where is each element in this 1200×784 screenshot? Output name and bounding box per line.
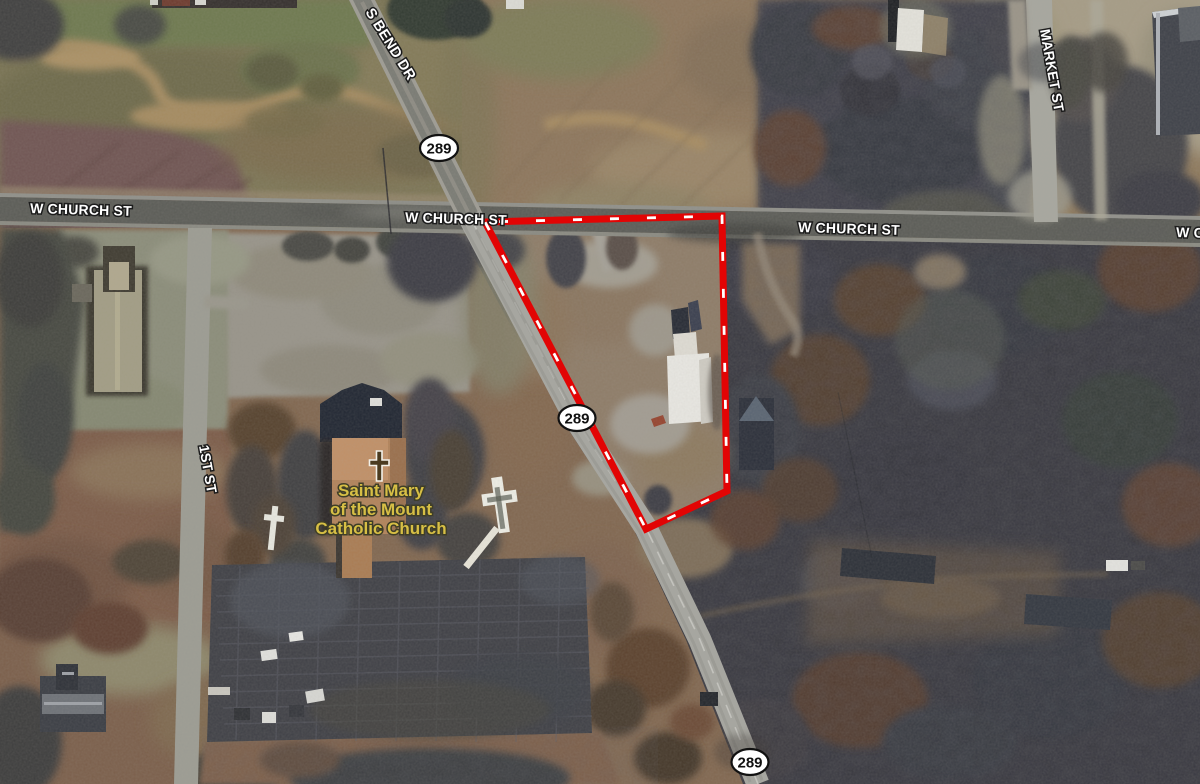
svg-text:W CHURCH ST: W CHURCH ST [405, 209, 507, 228]
svg-text:of the Mount: of the Mount [330, 500, 432, 519]
svg-text:Catholic Church: Catholic Church [315, 519, 446, 538]
svg-text:289: 289 [426, 141, 451, 158]
svg-text:W CHURCH ST: W CHURCH ST [798, 219, 900, 238]
svg-text:W CHURCH ST: W CHURCH ST [1176, 224, 1200, 243]
svg-text:W CHURCH ST: W CHURCH ST [30, 200, 132, 219]
svg-text:Saint Mary: Saint Mary [338, 481, 425, 500]
svg-text:289: 289 [737, 755, 762, 772]
svg-text:289: 289 [564, 411, 589, 428]
